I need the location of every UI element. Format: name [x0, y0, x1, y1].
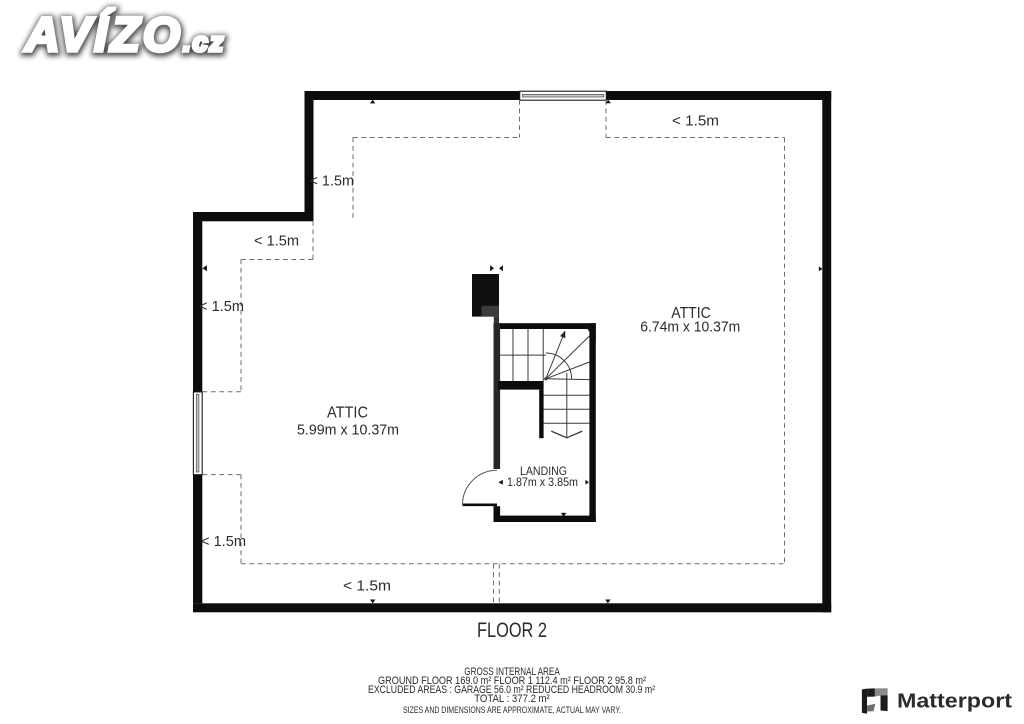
svg-text:1.87m x 3.85m: 1.87m x 3.85m [507, 477, 578, 489]
svg-text:< 1.5m: < 1.5m [199, 299, 244, 315]
svg-text:FLOOR 2: FLOOR 2 [477, 619, 547, 642]
svg-text:SIZES AND DIMENSIONS ARE APPRO: SIZES AND DIMENSIONS ARE APPROXIMATE, AC… [403, 705, 621, 716]
svg-text:Matterport: Matterport [897, 690, 1012, 713]
svg-text:ATTIC: ATTIC [327, 405, 368, 422]
svg-text:< 1.5m: < 1.5m [201, 534, 246, 550]
svg-text:< 1.5m: < 1.5m [343, 579, 391, 595]
svg-text:5.99m x 10.37m: 5.99m x 10.37m [297, 423, 399, 439]
svg-text:6.74m x 10.37m: 6.74m x 10.37m [640, 320, 740, 336]
svg-text:< 1.5m: < 1.5m [672, 114, 719, 130]
svg-text:< 1.5m: < 1.5m [254, 234, 299, 250]
svg-text:TOTAL : 377.2 m²: TOTAL : 377.2 m² [474, 693, 550, 705]
svg-text:< 1.5m: < 1.5m [310, 174, 355, 190]
